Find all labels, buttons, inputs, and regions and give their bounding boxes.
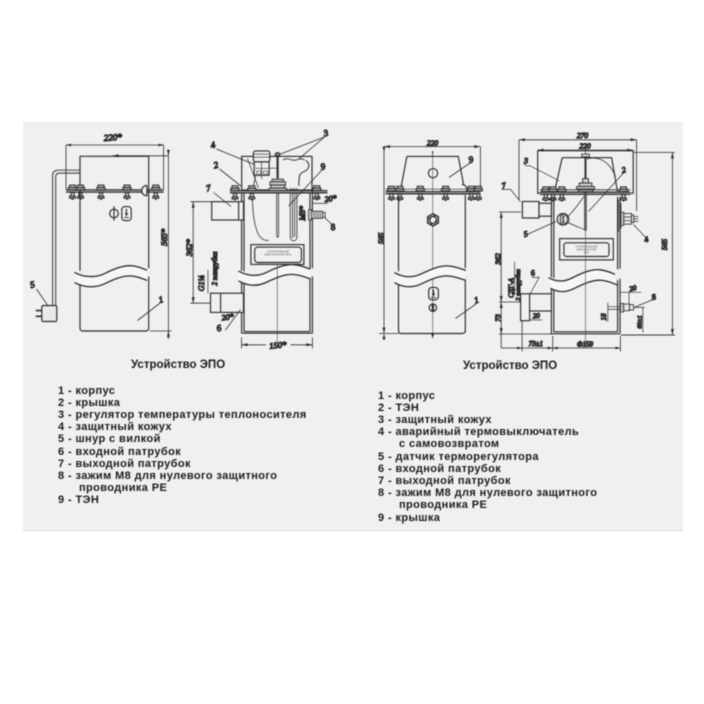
svg-text:2: 2 xyxy=(212,159,219,170)
svg-text:ЭПО: ЭПО xyxy=(584,251,590,255)
svg-text:565: 565 xyxy=(376,232,385,244)
svg-text:2 патрубка: 2 патрубка xyxy=(211,251,219,285)
svg-text:18: 18 xyxy=(600,313,608,321)
svg-text:73: 73 xyxy=(494,314,503,322)
svg-text:73±1: 73±1 xyxy=(529,340,543,348)
svg-text:7: 7 xyxy=(205,182,212,193)
svg-text:9: 9 xyxy=(319,161,326,172)
svg-text:20*: 20* xyxy=(324,193,337,204)
svg-text:Ф159: Ф159 xyxy=(577,340,594,348)
svg-text:565: 565 xyxy=(660,239,669,251)
svg-text:1: 1 xyxy=(157,294,164,305)
svg-text:362: 362 xyxy=(494,253,503,266)
svg-text:7: 7 xyxy=(501,180,508,190)
svg-text:20: 20 xyxy=(532,312,540,321)
svg-text:220*: 220* xyxy=(103,132,122,143)
svg-text:565*: 565* xyxy=(159,228,169,246)
svg-text:220: 220 xyxy=(427,138,439,147)
svg-text:20: 20 xyxy=(629,284,638,294)
svg-text:6: 6 xyxy=(530,268,536,278)
svg-text:3: 3 xyxy=(523,157,528,166)
svg-text:G1¼: G1¼ xyxy=(197,275,206,291)
svg-text:5: 5 xyxy=(29,279,36,290)
svg-text:362*: 362* xyxy=(184,239,194,258)
svg-text:270: 270 xyxy=(577,131,589,140)
svg-text:150*: 150* xyxy=(269,339,288,351)
svg-text:1: 1 xyxy=(473,295,480,306)
svg-text:60±1: 60±1 xyxy=(636,315,643,328)
svg-text:М8*: М8* xyxy=(298,206,307,222)
svg-text:2: 2 xyxy=(621,165,627,175)
svg-text:220: 220 xyxy=(579,142,591,151)
svg-text:6: 6 xyxy=(215,322,222,333)
svg-text:ЭЛЕКТРОКОТЕЛ ЭПО: ЭЛЕКТРОКОТЕЛ ЭПО xyxy=(264,253,291,257)
svg-text:3: 3 xyxy=(321,127,329,138)
svg-text:4: 4 xyxy=(209,139,216,150)
svg-text:9: 9 xyxy=(467,154,474,165)
svg-text:8: 8 xyxy=(651,292,657,302)
